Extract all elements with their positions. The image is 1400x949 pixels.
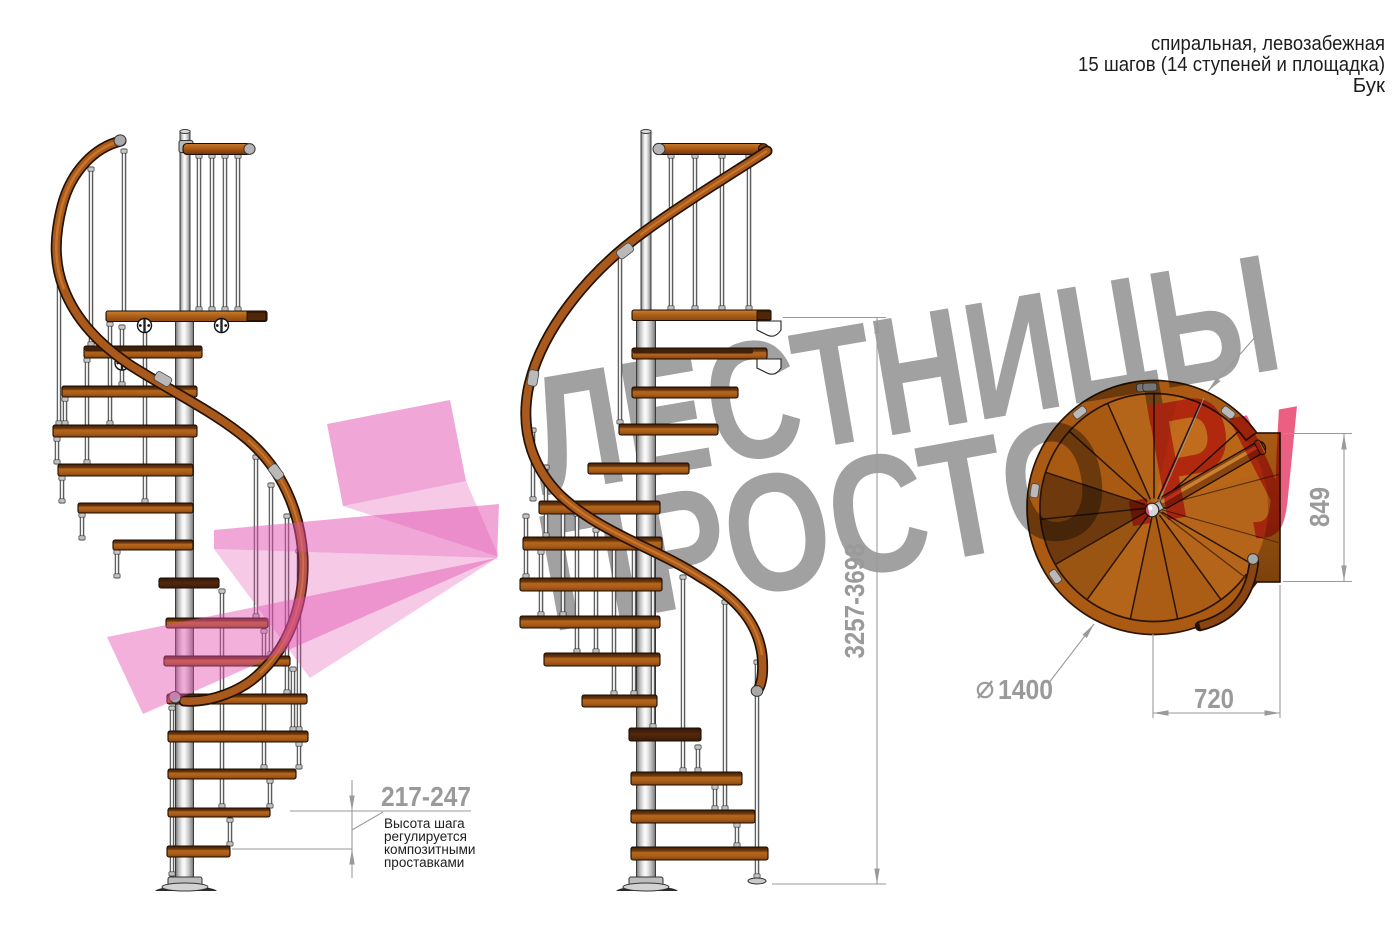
svg-text:проставками: проставками <box>384 855 464 870</box>
svg-text:спиральная, левозабежная: спиральная, левозабежная <box>1151 32 1385 55</box>
svg-text:217-247: 217-247 <box>381 781 471 812</box>
svg-text:720: 720 <box>1194 683 1234 714</box>
svg-text:849: 849 <box>1304 487 1335 527</box>
svg-text:3257-3698: 3257-3698 <box>839 544 870 659</box>
svg-text:.Ру: .Ру <box>1097 344 1320 563</box>
svg-text:15 шагов (14 ступеней и площад: 15 шагов (14 ступеней и площадка) <box>1078 53 1385 76</box>
svg-text:1400: 1400 <box>998 674 1053 705</box>
svg-text:Бук: Бук <box>1353 74 1386 97</box>
